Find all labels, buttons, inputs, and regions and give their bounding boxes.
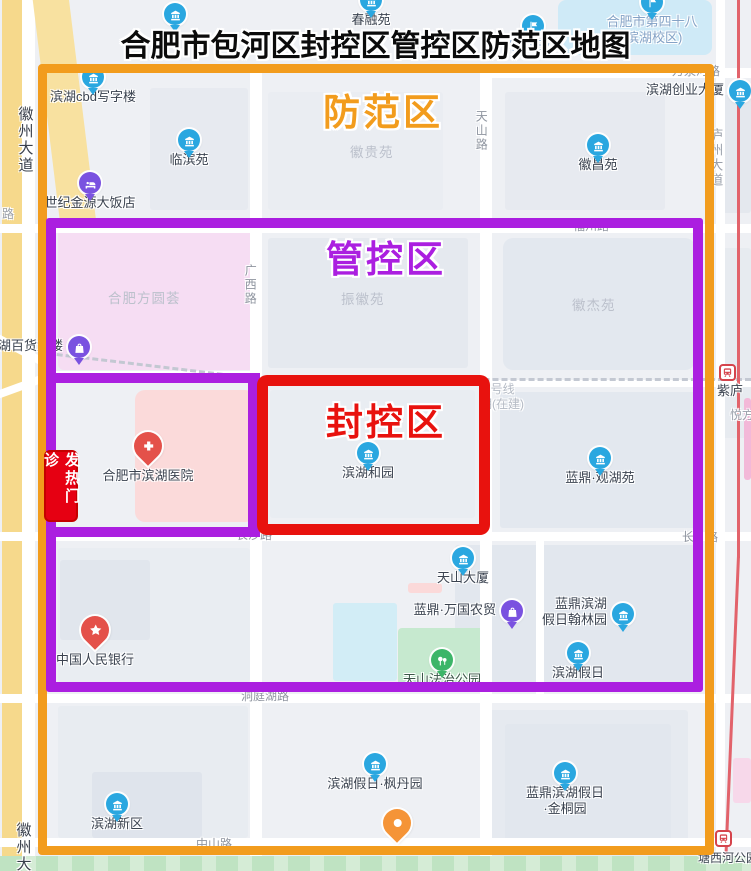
zone-label-sealed: 封控区	[326, 392, 446, 446]
building-pin-icon[interactable]	[729, 80, 751, 102]
zone-label-control: 管控区	[326, 229, 446, 283]
building-pin-icon[interactable]	[360, 0, 382, 11]
road-label: 悦方	[730, 409, 751, 422]
fever-clinic-badge: 发热门诊	[44, 450, 78, 522]
park-strip	[0, 856, 751, 871]
metro-station-icon[interactable]	[719, 364, 736, 381]
control-zone-hospital-bottom-segment	[46, 527, 260, 537]
map-screenshot: 徽州大道徽州大路庐州大道万泉河路广西路天山路福州路长沙路长路洞庭湖路中山路7号线…	[0, 0, 751, 871]
zone-label-precaution: 防范区	[323, 82, 443, 136]
page-title: 合肥市包河区封控区管控区防范区地图	[0, 21, 751, 65]
metro-line	[724, 556, 740, 871]
road-label: 徽州大	[14, 822, 31, 871]
pink-highlight-bar	[733, 758, 751, 803]
road-label: 徽州大道	[16, 106, 33, 174]
station-label: 紫庐	[717, 383, 743, 399]
control-zone-hospital-top-segment	[46, 373, 260, 383]
road-label: 路	[2, 208, 14, 221]
metro-station-icon[interactable]	[715, 830, 732, 847]
